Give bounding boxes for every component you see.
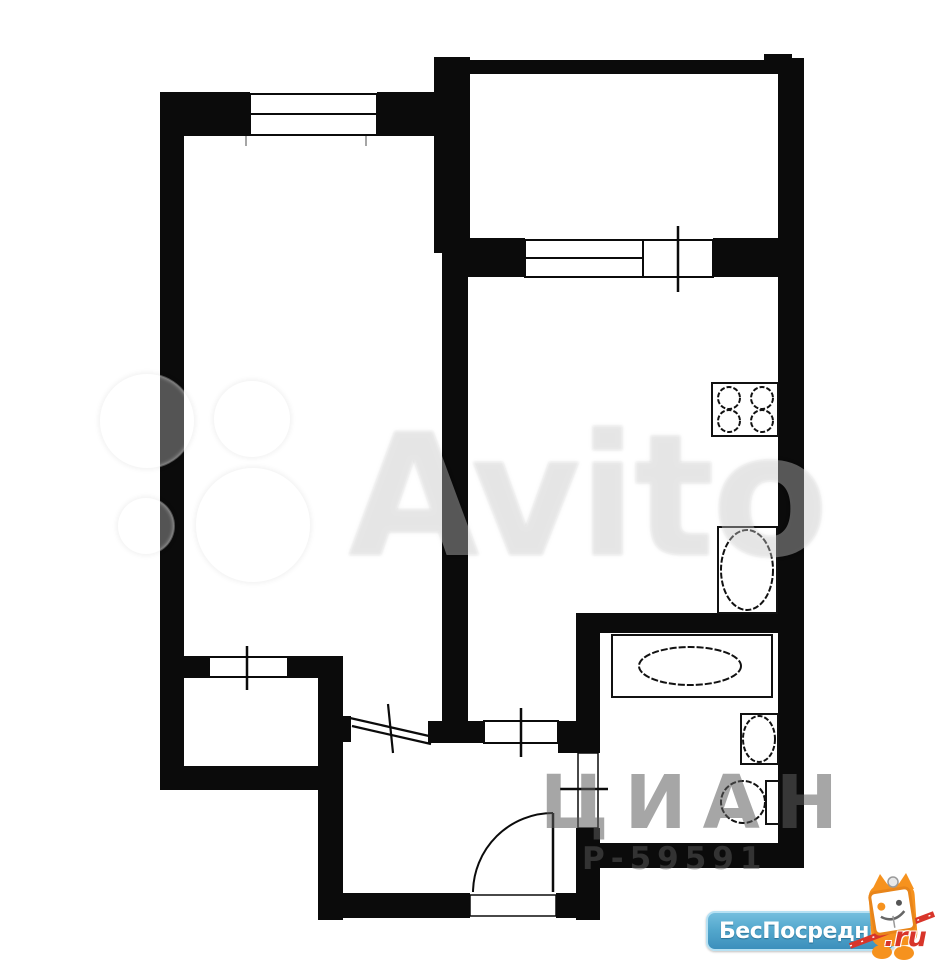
- wall-hallway-bottom-left: [318, 893, 470, 918]
- wall-top-left-segment: [160, 92, 250, 136]
- floor-plan-screenshot: Avito ЦИАН Р-59591 БесПосредника: [0, 0, 936, 960]
- wall-top-right-segment: [377, 92, 434, 136]
- avito-logo-circle: [117, 497, 175, 555]
- avito-watermark-text: Avito: [348, 412, 826, 582]
- closet-doorway: [209, 657, 288, 677]
- wall-balcony-bottom-right: [713, 238, 778, 277]
- besposrednika-logo: БесПосредника .ru: [698, 870, 936, 960]
- besposrednika-tld-text: .ru: [884, 922, 927, 953]
- mascot-pin: [888, 877, 898, 887]
- bathroom-sink-basin: [743, 716, 775, 762]
- wall-kitchen-bottom-left: [428, 721, 484, 743]
- wall-door-hinge-stub: [343, 716, 351, 742]
- entrance-door-sill: [470, 895, 556, 916]
- wall-closet-bottom: [160, 766, 343, 790]
- wall-bathroom-top: [576, 613, 804, 633]
- window-end-ticks: [246, 136, 366, 146]
- wall-balcony-top: [470, 60, 778, 74]
- wall-hallway-bottom-right: [556, 893, 600, 918]
- avito-logo-circle: [99, 373, 195, 469]
- living-room-door-ajar: [350, 704, 431, 753]
- bathroom-sink-icon: [741, 714, 778, 764]
- wall-balcony-bottom-left: [467, 238, 525, 277]
- wall-bathroom-left-upper: [576, 613, 600, 753]
- wall-divider-upper: [434, 57, 470, 253]
- cian-watermark-line1: ЦИАН: [540, 760, 854, 846]
- wall-hallway-left: [318, 678, 343, 920]
- bathtub-basin: [639, 647, 741, 685]
- avito-logo-circle: [195, 467, 311, 583]
- avito-logo-circle: [213, 380, 291, 458]
- bathtub-icon: [612, 635, 772, 697]
